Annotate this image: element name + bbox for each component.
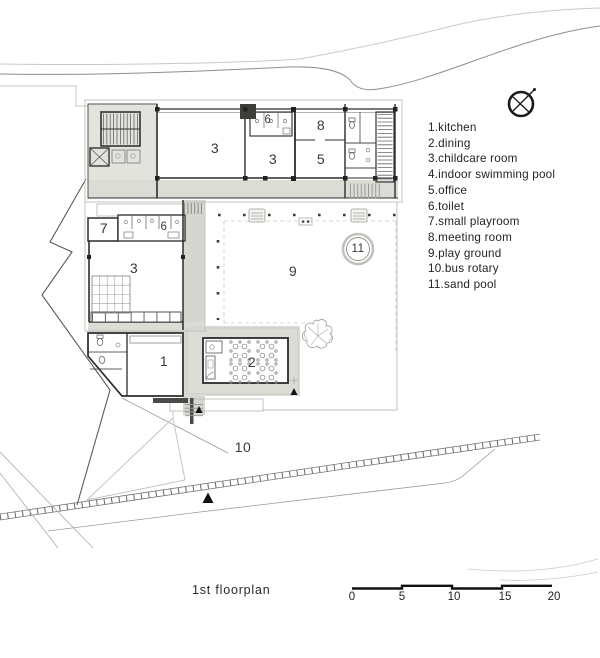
room-label-kitchen: 1 (160, 353, 168, 369)
scale-label-15: 15 (499, 591, 512, 603)
floorplan-page: 3 6 8 3 5 7 6 3 9 11 1 2 10 1.kitchen 2.… (0, 0, 600, 658)
legend-item-bus-rotary: 10.bus rotary (428, 261, 555, 277)
room-label-meeting-room: 8 (317, 117, 325, 133)
legend-item-indoor-swimming-pool: 4.indoor swimming pool (428, 167, 555, 183)
floorplan-drawing (0, 0, 600, 658)
room-label-sand-pool: 11 (352, 243, 365, 255)
legend-item-childcare-room: 3.childcare room (428, 151, 555, 167)
room-label-small-playroom: 7 (100, 220, 108, 236)
columns (155, 107, 398, 181)
drawing-caption: 1st floorplan (192, 583, 271, 597)
room-label-playground: 9 (289, 263, 297, 279)
legend-item-small-playroom: 7.small playroom (428, 214, 555, 230)
scale-label-20: 20 (548, 591, 561, 603)
scale-label-10: 10 (448, 591, 461, 603)
legend-item-toilet: 6.toilet (428, 199, 555, 215)
room-label-bus-rotary: 10 (235, 439, 252, 455)
stairs-east-icon (345, 112, 394, 191)
room-label-childcare-c: 3 (130, 260, 138, 276)
bench-icon (249, 209, 367, 222)
room-label-childcare-a: 3 (211, 140, 219, 156)
legend-item-play-ground: 9.play ground (428, 246, 555, 262)
tree-icon (302, 320, 332, 349)
legend-item-sand-pool: 11.sand pool (428, 277, 555, 293)
room-label-office: 5 (317, 151, 325, 167)
scale-label-5: 5 (399, 591, 405, 603)
room-label-toilet-west: 6 (161, 221, 168, 233)
legend-item-kitchen: 1.kitchen (428, 120, 555, 136)
bus-rotary-area (87, 411, 185, 500)
legend-item-dining: 2.dining (428, 136, 555, 152)
room-label-toilet-north: 6 (265, 114, 272, 126)
legend-item-office: 5.office (428, 183, 555, 199)
legend-item-meeting-room: 8.meeting room (428, 230, 555, 246)
scale-label-0: 0 (349, 591, 355, 603)
scale-bar (352, 586, 552, 589)
room-label-dining: 2 (248, 354, 256, 370)
legend: 1.kitchen 2.dining 3.childcare room 4.in… (428, 120, 555, 293)
north-arrow-icon (509, 88, 536, 116)
tatami-grid (92, 276, 130, 313)
road-retaining-wall (0, 434, 598, 580)
room-label-childcare-b: 3 (269, 151, 277, 167)
